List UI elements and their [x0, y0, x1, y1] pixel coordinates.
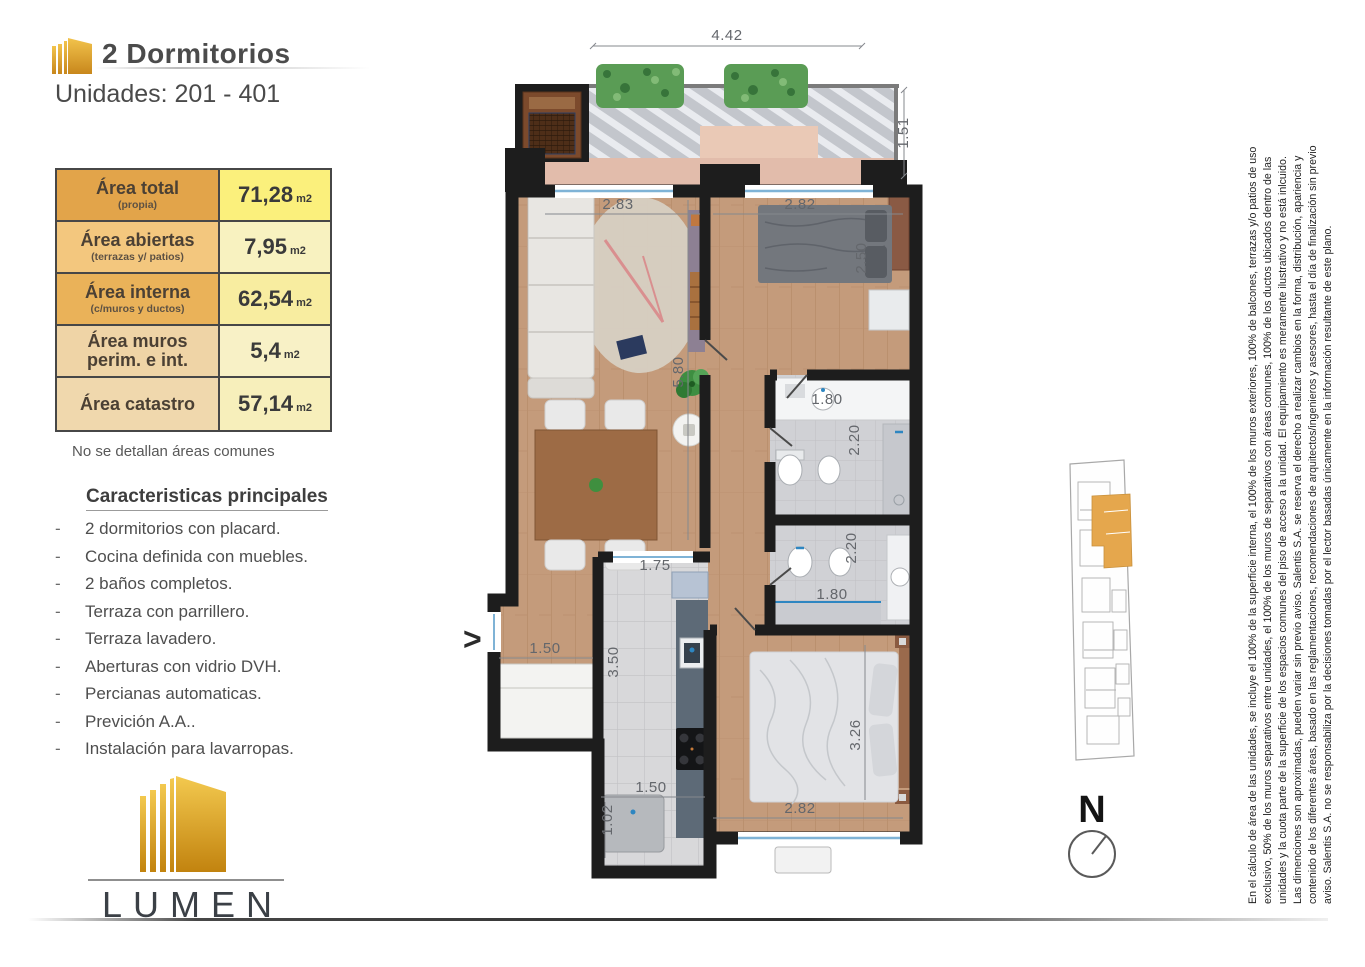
- bedroom-2: [750, 634, 913, 804]
- dim-label: 1.50: [635, 779, 666, 796]
- lumen-logo-icon: [128, 768, 248, 880]
- dim-label: 4.42: [711, 27, 742, 44]
- legal-disclaimer: En el cálculo de área de las unidades, s…: [1246, 30, 1335, 904]
- row-sublabel: (c/muros y ductos): [91, 303, 185, 315]
- disclaimer-line: contenido de los diferentes áreas, basad…: [1306, 30, 1321, 904]
- table-row: Área catastro 57,14m2: [57, 378, 330, 430]
- dim-label: 2.82: [784, 196, 815, 213]
- row-value: 71,28: [238, 182, 293, 208]
- row-unit: m2: [284, 349, 300, 361]
- title-divider: [95, 67, 370, 69]
- dim-label: 3.50: [605, 646, 622, 677]
- common-areas-note: No se detallan áreas comunes: [72, 443, 275, 460]
- dim-label: 2.82: [784, 800, 815, 817]
- kitchen: [672, 572, 708, 838]
- logo-baseline: [88, 879, 284, 881]
- feature-item: -Cocina definida con muebles.: [55, 548, 395, 566]
- row-label: Área interna: [85, 283, 190, 302]
- row-sublabel: (propia): [118, 199, 157, 211]
- bottom-divider: [28, 918, 1328, 921]
- feature-item: -2 baños completos.: [55, 575, 395, 593]
- sofa: [528, 192, 594, 398]
- dim-label: 3.26: [847, 719, 864, 750]
- dim-label: 2.20: [843, 532, 860, 563]
- north-compass-icon: N: [1050, 788, 1140, 890]
- ac-unit: [775, 847, 831, 873]
- dim-label: 1.80: [816, 586, 847, 603]
- dim-label: 1.50: [529, 640, 560, 657]
- row-label: Área muros perim. e int.: [63, 332, 212, 370]
- features-heading: Caracteristicas principales: [86, 486, 328, 511]
- disclaimer-line: unidades y la cuota parte de la superfic…: [1276, 30, 1291, 904]
- row-label: Área total: [96, 179, 179, 198]
- entry-closet: [499, 664, 594, 738]
- row-value: 7,95: [244, 234, 287, 260]
- feature-item: -Terraza lavadero.: [55, 630, 395, 648]
- row-sublabel: (terrazas y/ patios): [91, 251, 184, 263]
- entry-arrow-icon: >: [463, 621, 482, 657]
- row-label: Área catastro: [80, 395, 195, 414]
- dim-label: 1.75: [639, 557, 670, 574]
- row-unit: m2: [290, 245, 306, 257]
- units-subtitle: Unidades: 201 - 401: [55, 80, 280, 109]
- dim-label: 2.20: [846, 424, 863, 455]
- table-row: Área muros perim. e int. 5,4m2: [57, 326, 330, 378]
- feature-item: -Terraza con parrillero.: [55, 603, 395, 621]
- row-value: 62,54: [238, 286, 293, 312]
- page-title: 2 Dormitorios: [102, 38, 291, 70]
- terrace: [505, 64, 907, 192]
- row-label: Área abiertas: [80, 231, 194, 250]
- row-unit: m2: [296, 402, 312, 414]
- feature-item: -Instalación para lavarropas.: [55, 740, 395, 758]
- feature-item: -Percianas automaticas.: [55, 685, 395, 703]
- table-row: Área total(propia) 71,28m2: [57, 170, 330, 222]
- building-icon: [48, 34, 96, 78]
- row-value: 57,14: [238, 391, 293, 417]
- area-table: Área total(propia) 71,28m2 Área abiertas…: [55, 168, 332, 432]
- building-locator: [1040, 450, 1160, 770]
- row-unit: m2: [296, 297, 312, 309]
- disclaimer-line: exclusivo, 50% de los muros separativos …: [1261, 30, 1276, 904]
- dim-label: 2.83: [602, 196, 633, 213]
- dim-label: 5.80: [670, 356, 687, 387]
- feature-item: -Previción A.A..: [55, 713, 395, 731]
- hedge-planter: [596, 64, 684, 108]
- table-row: Área abiertas(terrazas y/ patios) 7,95m2: [57, 222, 330, 274]
- feature-item: -2 dormitorios con placard.: [55, 520, 395, 538]
- disclaimer-line: aviso. Salentis S.A. no se responsabiliz…: [1321, 30, 1336, 904]
- dim-label: 1.51: [895, 117, 912, 148]
- dim-label: 2.50: [853, 242, 870, 273]
- row-unit: m2: [296, 193, 312, 205]
- row-value: 5,4: [250, 338, 281, 364]
- features-list: Caracteristicas principales -2 dormitori…: [55, 486, 395, 768]
- dim-label: 1.80: [811, 391, 842, 408]
- disclaimer-line: En el cálculo de área de las unidades, s…: [1246, 30, 1261, 904]
- table-row: Área interna(c/muros y ductos) 62,54m2: [57, 274, 330, 326]
- north-label: N: [1078, 789, 1105, 831]
- hedge-planter: [724, 64, 808, 108]
- dim-label: 1.02: [599, 804, 616, 835]
- disclaimer-line: Las dimenciones son aproximadas, pueden …: [1291, 30, 1306, 904]
- floor-plan: 4.42 1.51 2.83 2.82 2.50 5.80 1.80 2.20 …: [455, 0, 955, 900]
- feature-item: -Aberturas con vidrio DVH.: [55, 658, 395, 676]
